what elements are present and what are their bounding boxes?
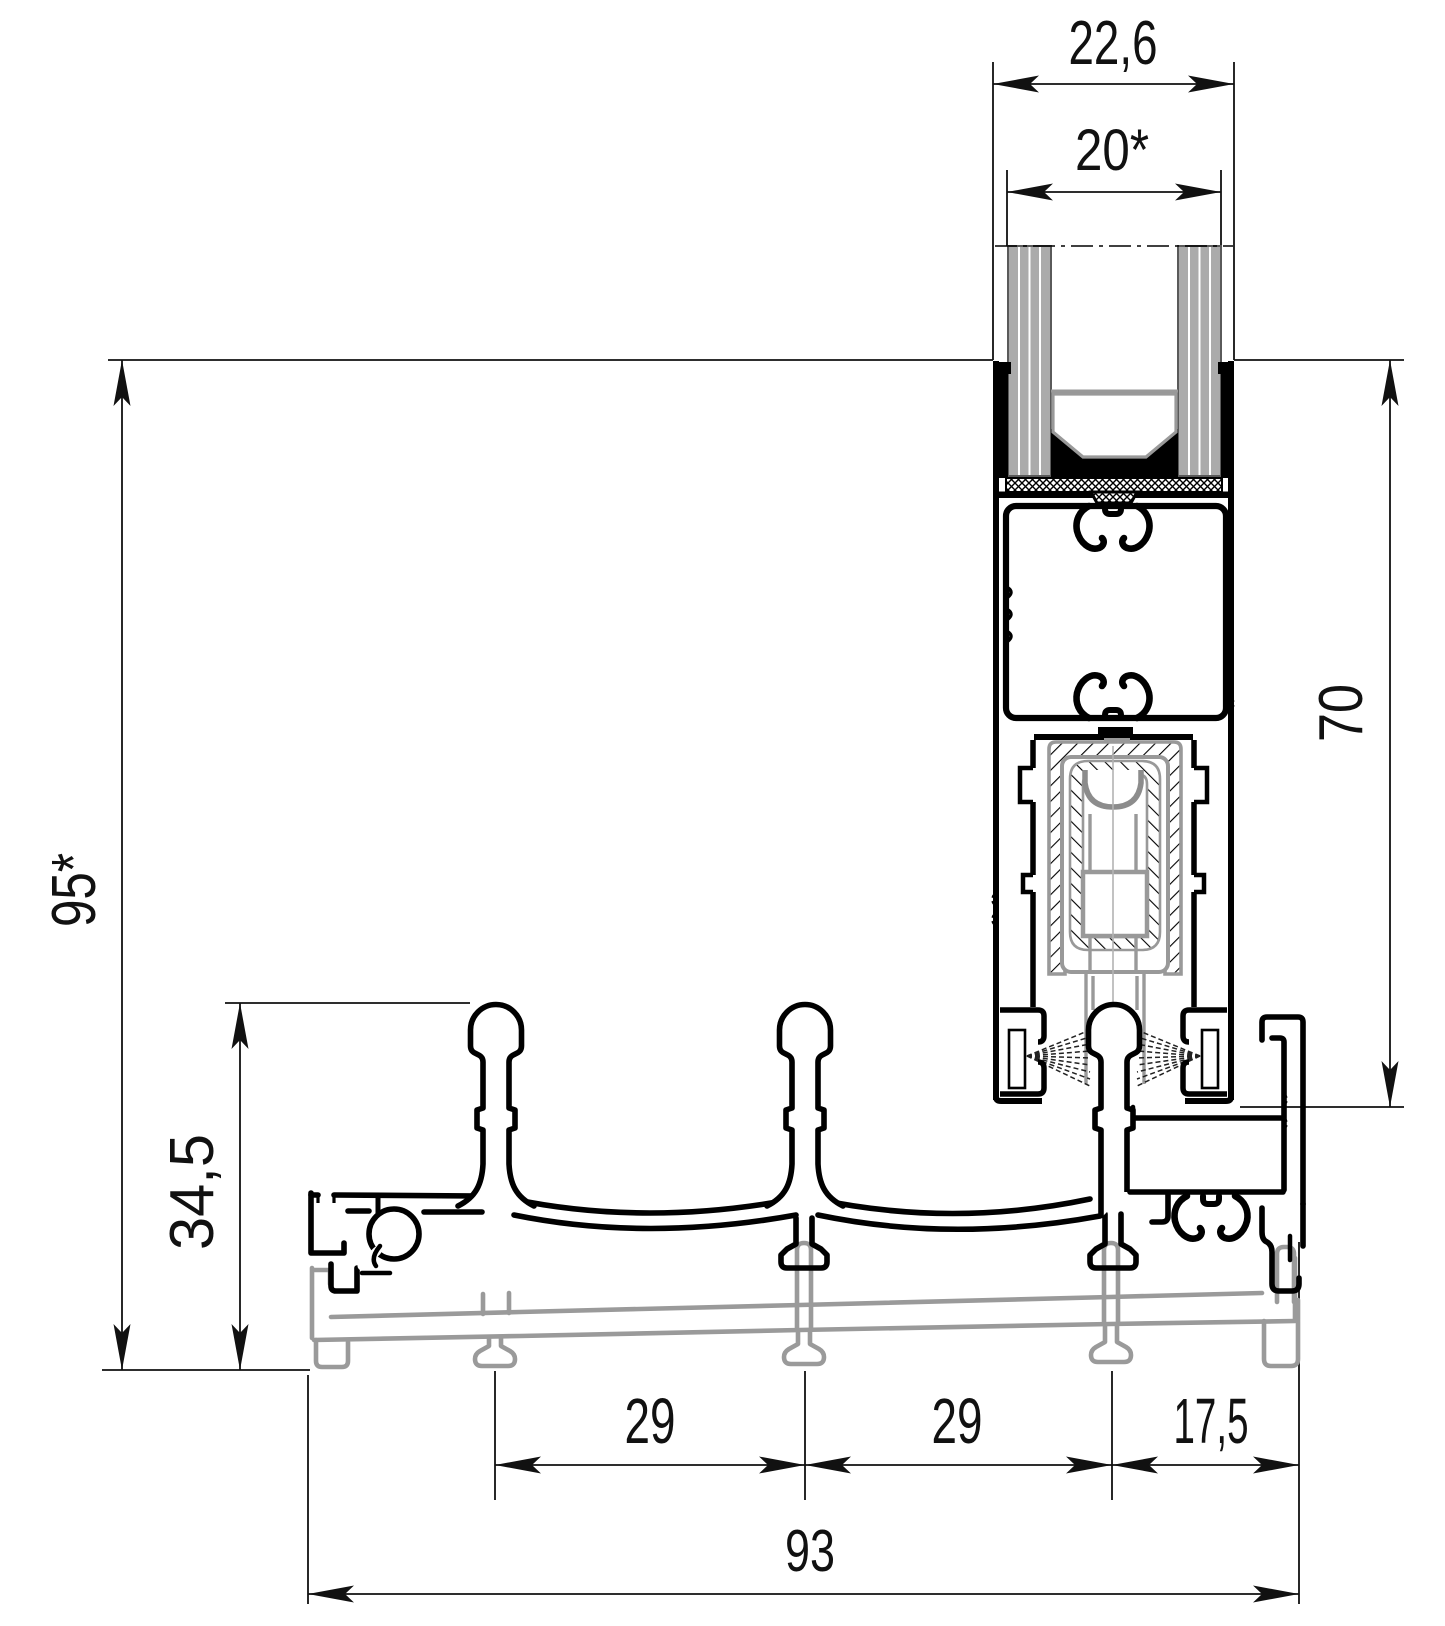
svg-text:29: 29 xyxy=(625,1385,676,1457)
svg-text:17,5: 17,5 xyxy=(1174,1385,1249,1457)
svg-text:70: 70 xyxy=(1307,684,1376,742)
svg-text:34,5: 34,5 xyxy=(158,1134,227,1250)
svg-text:20*: 20* xyxy=(1075,118,1149,183)
svg-text:95*: 95* xyxy=(40,853,109,927)
svg-text:29: 29 xyxy=(932,1385,983,1457)
svg-text:93: 93 xyxy=(785,1518,835,1584)
svg-text:22,6: 22,6 xyxy=(1069,9,1158,78)
